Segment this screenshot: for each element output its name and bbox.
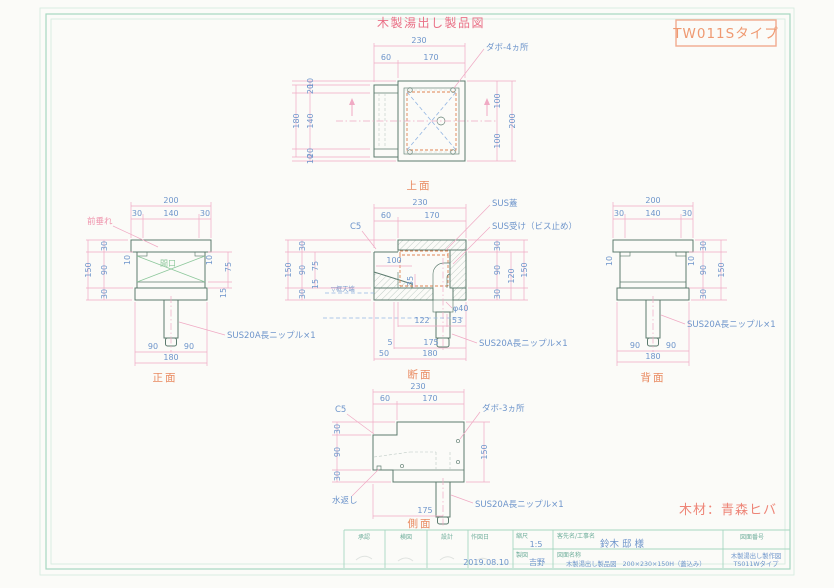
side-dim-175: 175	[417, 506, 432, 515]
section-lid-note: SUS蓋	[492, 198, 518, 209]
side-dowel-note: ダボ-3ヵ所	[482, 403, 525, 414]
type-label-box: TW011Sタイプ	[672, 20, 778, 46]
front-opening-note: 間口	[160, 259, 176, 268]
side-view-dimensions: 230 60 170 C5 ダボ-3ヵ所 30 90 30 150 175 水返…	[332, 382, 564, 519]
side-dim-h3: 30	[333, 471, 342, 481]
titleblock-drafter-label: 製図	[516, 551, 528, 559]
rear-dim-inset-l: 10	[605, 256, 614, 266]
front-dim-b1: 90	[148, 342, 158, 351]
section-frame-note: ▽框天端	[331, 284, 355, 293]
section-dim-h3: 30	[298, 289, 307, 299]
section-dim-100: 100	[386, 256, 401, 265]
rear-dim-inset-r: 10	[687, 256, 696, 266]
section-dim-53: 53	[452, 316, 462, 325]
rear-dim-b1: 90	[630, 341, 640, 350]
top-dim-200: 200	[508, 113, 517, 128]
section-dim-150l: 150	[284, 262, 293, 277]
section-dim-75: 75	[311, 261, 320, 271]
front-dim-150: 150	[84, 262, 93, 277]
front-view-geometry: 間口	[131, 240, 211, 352]
titleblock-no-label: 図面番号	[740, 534, 764, 541]
side-dim-h2: 90	[333, 447, 342, 457]
front-dim-200: 200	[163, 196, 178, 205]
rear-dim-r3: 30	[699, 289, 708, 299]
top-dim-r1: 100	[493, 93, 502, 108]
titleblock-name-label: 図面名称	[557, 551, 581, 559]
top-dim-60: 60	[381, 53, 391, 62]
front-dim-t3: 30	[200, 209, 210, 218]
section-view-label: 断面	[408, 368, 433, 381]
front-dim-inset-r: 10	[205, 255, 214, 265]
top-view-dimensions: 230 60 170 10 20 140 20 10 180 100 100 2…	[292, 36, 529, 164]
section-dim-h2: 90	[298, 265, 307, 275]
front-apron-note: 前垂れ	[87, 216, 113, 227]
section-dim-150r: 150	[520, 262, 529, 277]
rear-dim-t2: 140	[645, 209, 660, 218]
rear-dim-b2: 90	[666, 341, 676, 350]
front-nipple-note: SUS20A長ニップル×1	[227, 331, 316, 341]
side-view-label: 側面	[408, 517, 433, 530]
front-view-dimensions: 200 30 140 30 30 90 30 150 10 10 75 15 9…	[84, 196, 316, 366]
section-dim-230: 230	[412, 198, 427, 207]
side-nipple-note: SUS20A長ニップル×1	[475, 500, 564, 510]
top-dim-180: 180	[292, 113, 301, 128]
side-dim-170: 170	[422, 394, 437, 403]
titleblock-approve-label: 承認	[358, 533, 370, 541]
section-dim-5: 5	[387, 338, 392, 347]
front-dim-t1: 30	[132, 209, 142, 218]
section-view-dimensions: 230 60 170 C5 150 30 90 30 75 15 100 35 …	[284, 198, 577, 361]
rear-dim-180: 180	[645, 352, 660, 361]
titleblock-scale-value: 1:5	[530, 540, 543, 549]
rear-dim-t1: 30	[614, 209, 624, 218]
title-block: 承認 検図 設計 作図日 2019.08.10 縮尺 1:5 製図 吉野 客先名…	[344, 530, 790, 568]
rear-view-geometry	[613, 240, 693, 352]
front-dim-h2: 90	[100, 265, 109, 275]
top-view-label: 上面	[407, 180, 432, 192]
top-dim-230: 230	[411, 36, 426, 45]
section-chamfer-note: C5	[350, 222, 361, 232]
rear-nipple-note: SUS20A長ニップル×1	[687, 320, 776, 330]
titleblock-scale-label: 縮尺	[516, 532, 528, 540]
rear-dim-r2: 90	[699, 265, 708, 275]
top-dim-l2: 20	[306, 84, 315, 94]
rear-dim-r1: 30	[699, 241, 708, 251]
top-dim-l5: 10	[306, 154, 315, 164]
section-dim-50: 50	[379, 349, 389, 358]
titleblock-design-label: 設計	[441, 533, 453, 541]
side-chamfer-note: C5	[335, 405, 346, 415]
titleblock-client-label: 客先名/工事名	[557, 532, 595, 540]
rear-view-dimensions: 200 30 140 30 10 10 30 90 30 150 90 90 1…	[605, 196, 776, 366]
rear-dim-t3: 30	[682, 209, 692, 218]
titleblock-name-value: 木製湯出し製品図 200×230×150H（蓋込み）	[566, 559, 706, 568]
top-dim-170: 170	[423, 53, 438, 62]
front-dim-h1: 30	[100, 241, 109, 251]
section-dim-15: 15	[311, 279, 320, 289]
section-dim-175: 175	[423, 338, 438, 347]
section-dim-r2: 90	[493, 265, 502, 275]
front-dim-b2: 90	[184, 342, 194, 351]
rear-dim-150: 150	[717, 262, 726, 277]
rear-dim-200: 200	[645, 196, 660, 205]
section-dim-r1: 30	[493, 241, 502, 251]
titleblock-check-label: 検図	[400, 533, 412, 541]
rear-view: 200 30 140 30 10 10 30 90 30 150 90 90 1…	[605, 196, 776, 384]
rear-view-label: 背面	[641, 371, 666, 384]
titleblock-no-value1: 木製湯出し製作図	[731, 551, 781, 560]
front-dim-75: 75	[224, 262, 233, 272]
front-view: 間口 200 30 140 30 30 90 30 150 10 10	[84, 196, 316, 384]
front-view-label: 正面	[153, 372, 178, 384]
titleblock-date-label: 作図日	[471, 533, 489, 541]
section-receiver-note: SUS受け（ビス止め）	[492, 221, 577, 232]
technical-drawing-canvas: 木製湯出し製品図 TW011Sタイプ 木材：青森ヒバ	[0, 0, 834, 588]
section-dim-120: 120	[507, 268, 516, 283]
titleblock-drafter-value: 吉野	[529, 558, 545, 567]
front-dim-180: 180	[163, 353, 178, 362]
section-dim-170: 170	[424, 211, 439, 220]
front-dim-15: 15	[219, 288, 228, 298]
side-view: 230 60 170 C5 ダボ-3ヵ所 30 90 30 150 175 水返…	[332, 382, 564, 530]
side-dim-60: 60	[380, 394, 390, 403]
top-dim-r2: 100	[493, 133, 502, 148]
front-dim-inset-l: 10	[123, 255, 132, 265]
titleblock-no-value2: TS011Wタイプ	[733, 559, 780, 568]
drawing-title: 木製湯出し製品図	[377, 16, 485, 30]
side-dim-h1: 30	[333, 424, 342, 434]
type-label: TW011Sタイプ	[672, 26, 778, 42]
top-view: 230 60 170 10 20 140 20 10 180 100 100 2…	[292, 36, 529, 192]
front-dim-t2: 140	[163, 209, 178, 218]
side-dim-230: 230	[410, 382, 425, 391]
material-note: 木材：青森ヒバ	[679, 503, 777, 518]
section-dim-60: 60	[381, 211, 391, 220]
section-dim-35: 35	[406, 276, 415, 286]
top-dim-l3: 140	[306, 113, 315, 128]
top-dowel-note: ダボ-4ヵ所	[486, 42, 529, 53]
section-view: ▽框天端 230 60 170 C5 150 30 90 30 75 15 10…	[284, 198, 577, 381]
drawing-sheet: 木製湯出し製品図 TW011Sタイプ 木材：青森ヒバ	[0, 0, 834, 588]
section-nipple-note: SUS20A長ニップル×1	[479, 339, 568, 349]
section-dim-h1: 30	[298, 241, 307, 251]
section-dim-180: 180	[422, 349, 437, 358]
section-dia-note: φ40	[453, 304, 468, 313]
section-dim-122: 122	[414, 316, 429, 325]
side-drip-note: 水返し	[332, 495, 358, 506]
section-dim-r3: 30	[493, 289, 502, 299]
titleblock-client-value: 鈴木 邸 様	[600, 538, 645, 550]
front-dim-h3: 30	[100, 289, 109, 299]
side-dim-150: 150	[480, 444, 489, 459]
